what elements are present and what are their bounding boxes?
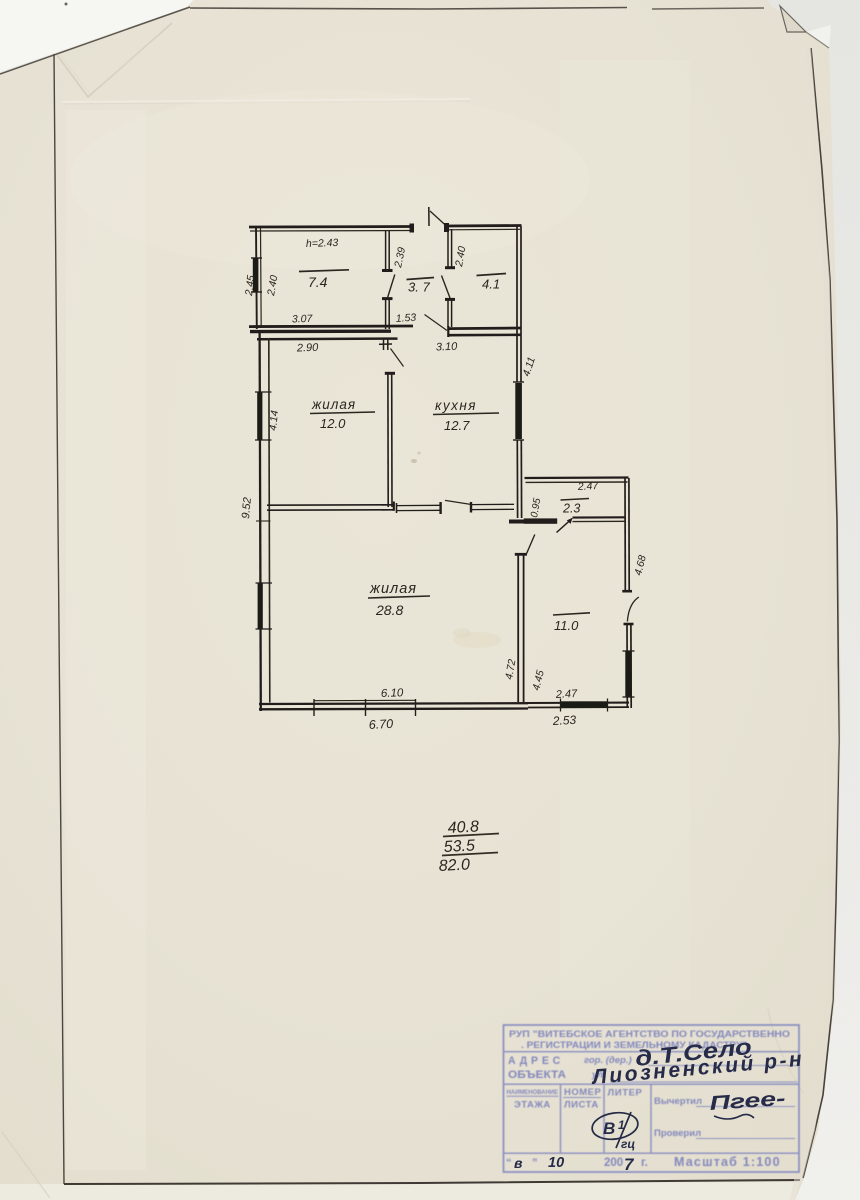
svg-text:“: “ bbox=[506, 1157, 512, 1169]
svg-text:”: ” bbox=[532, 1157, 538, 1169]
svg-text:2.47: 2.47 bbox=[577, 480, 600, 493]
svg-text:2.90: 2.90 bbox=[296, 342, 320, 355]
svg-text:Масштаб 1:100: Масштаб 1:100 bbox=[674, 1155, 781, 1169]
svg-text:4.1: 4.1 bbox=[482, 277, 500, 292]
svg-text:82.0: 82.0 bbox=[438, 856, 470, 875]
svg-text:4.14: 4.14 bbox=[267, 410, 281, 432]
svg-text:кухня: кухня bbox=[435, 398, 477, 413]
svg-text:Вычертил: Вычертил bbox=[654, 1096, 702, 1107]
svg-text:3.10: 3.10 bbox=[436, 341, 459, 354]
svg-text:6.70: 6.70 bbox=[368, 717, 393, 732]
svg-text:НАИМЕНОВАНИЕ: НАИМЕНОВАНИЕ bbox=[507, 1089, 559, 1096]
svg-text:12.7: 12.7 bbox=[444, 418, 470, 433]
svg-text:12.0: 12.0 bbox=[320, 416, 346, 431]
svg-text:9.52: 9.52 bbox=[240, 497, 254, 519]
svg-text:7: 7 bbox=[624, 1155, 635, 1174]
svg-text:2.53: 2.53 bbox=[551, 713, 576, 728]
svg-text:3. 7: 3. 7 bbox=[408, 280, 430, 295]
svg-text:10: 10 bbox=[548, 1155, 564, 1171]
svg-text:В: В bbox=[603, 1119, 615, 1138]
svg-text:1.53: 1.53 bbox=[395, 312, 416, 325]
svg-text:гц: гц bbox=[621, 1137, 635, 1151]
svg-text:АДРЕС: АДРЕС bbox=[508, 1055, 564, 1067]
svg-text:в: в bbox=[514, 1155, 523, 1171]
svg-text:жилая: жилая bbox=[311, 397, 356, 412]
svg-text:2.3: 2.3 bbox=[562, 502, 580, 516]
svg-text:28.8: 28.8 bbox=[375, 602, 403, 618]
svg-text:ЛИТЕР: ЛИТЕР bbox=[608, 1088, 643, 1099]
svg-text:жилая: жилая bbox=[369, 581, 417, 597]
svg-text:2.47: 2.47 bbox=[555, 688, 579, 701]
svg-text:200: 200 bbox=[604, 1157, 623, 1169]
svg-text:ОБЪЕКТА: ОБЪЕКТА bbox=[508, 1069, 566, 1081]
svg-text:г.: г. bbox=[641, 1157, 648, 1169]
svg-text:Проверил: Проверил bbox=[654, 1128, 701, 1139]
svg-text:ЭТАЖА: ЭТАЖА bbox=[514, 1100, 551, 1111]
svg-text:7.4: 7.4 bbox=[308, 274, 328, 290]
svg-text:6.10: 6.10 bbox=[381, 687, 404, 700]
svg-text:ЛИСТА: ЛИСТА bbox=[564, 1100, 599, 1111]
svg-text:11.0: 11.0 bbox=[554, 618, 579, 633]
svg-text:3.07: 3.07 bbox=[292, 313, 314, 326]
svg-text:h=2.43: h=2.43 bbox=[306, 237, 339, 250]
